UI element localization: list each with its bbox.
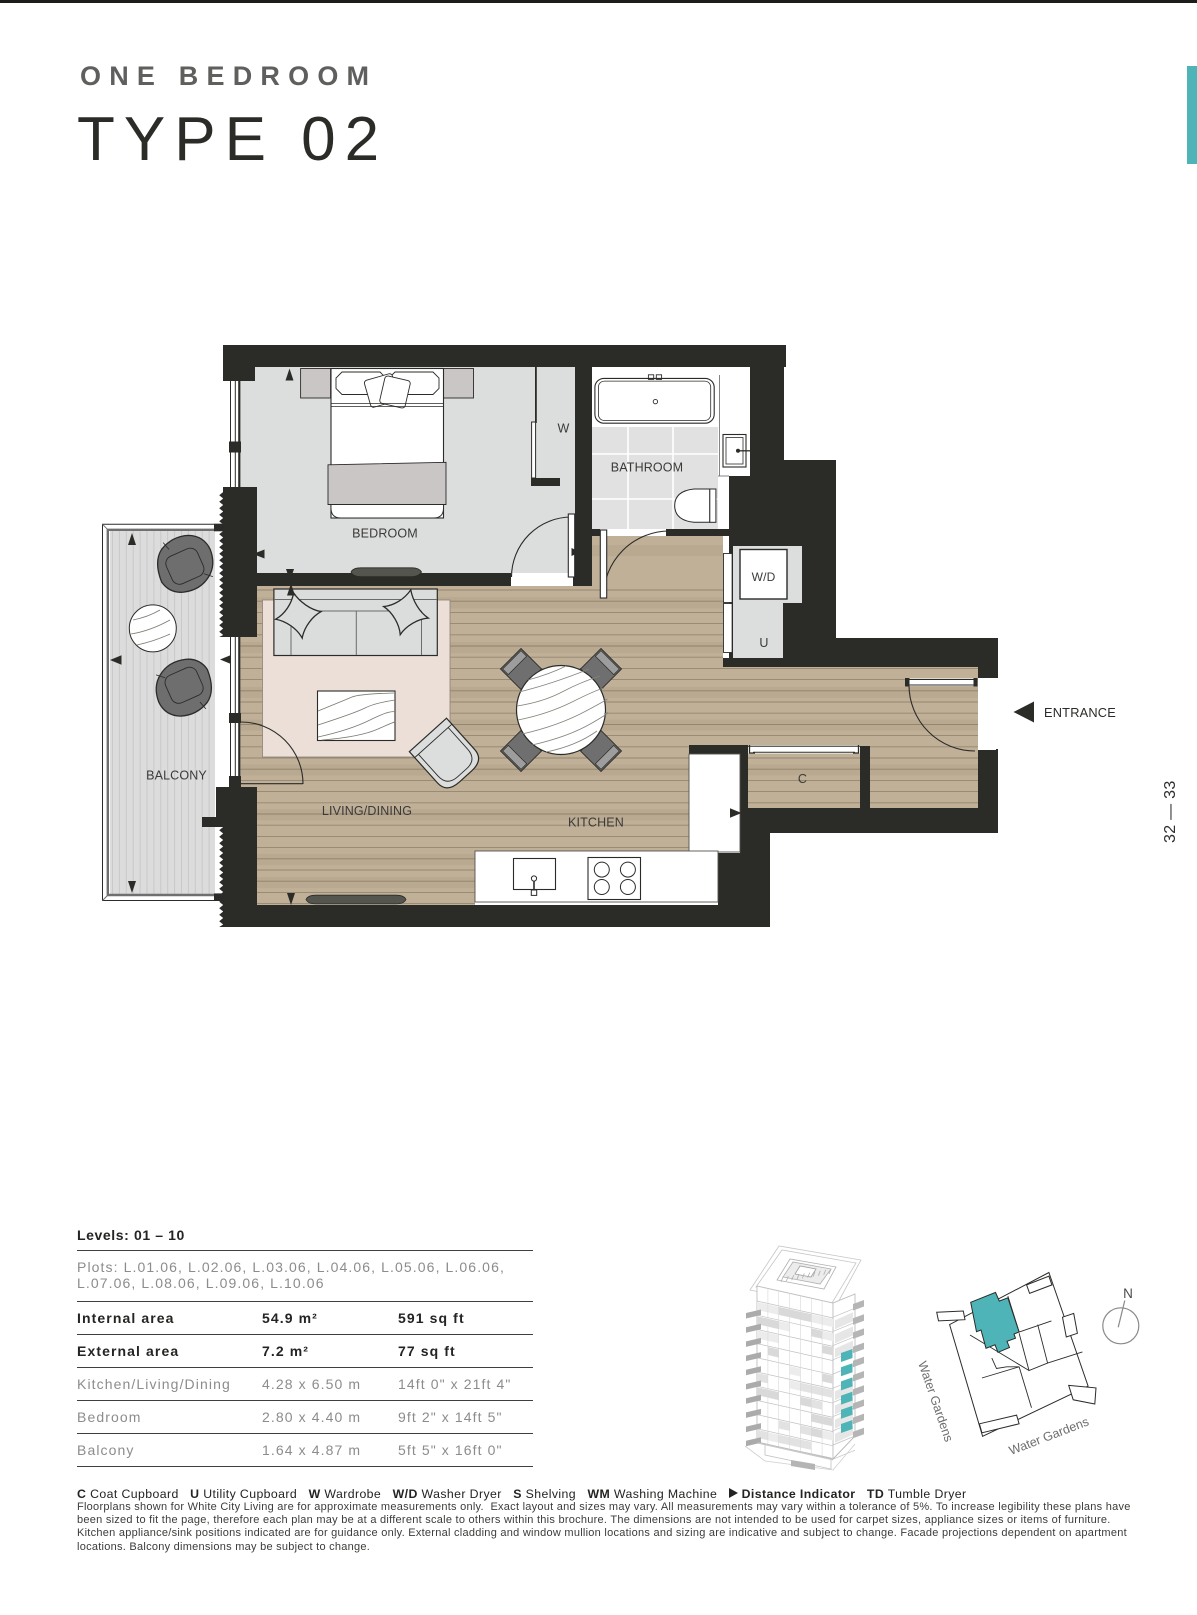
svg-text:BATHROOM: BATHROOM bbox=[611, 461, 684, 475]
svg-text:Water Gardens: Water Gardens bbox=[915, 1359, 956, 1443]
svg-text:BALCONY: BALCONY bbox=[146, 769, 207, 783]
svg-text:LIVING/DINING: LIVING/DINING bbox=[322, 804, 412, 818]
svg-text:W/D: W/D bbox=[752, 570, 776, 584]
svg-text:Water Gardens: Water Gardens bbox=[1007, 1414, 1091, 1457]
svg-text:W: W bbox=[558, 422, 570, 436]
svg-text:N: N bbox=[1123, 1286, 1133, 1301]
svg-text:C: C bbox=[798, 772, 807, 786]
svg-text:U: U bbox=[759, 636, 768, 650]
svg-text:KITCHEN: KITCHEN bbox=[568, 816, 624, 830]
svg-text:ENTRANCE: ENTRANCE bbox=[1044, 705, 1116, 720]
svg-text:BEDROOM: BEDROOM bbox=[352, 527, 418, 541]
